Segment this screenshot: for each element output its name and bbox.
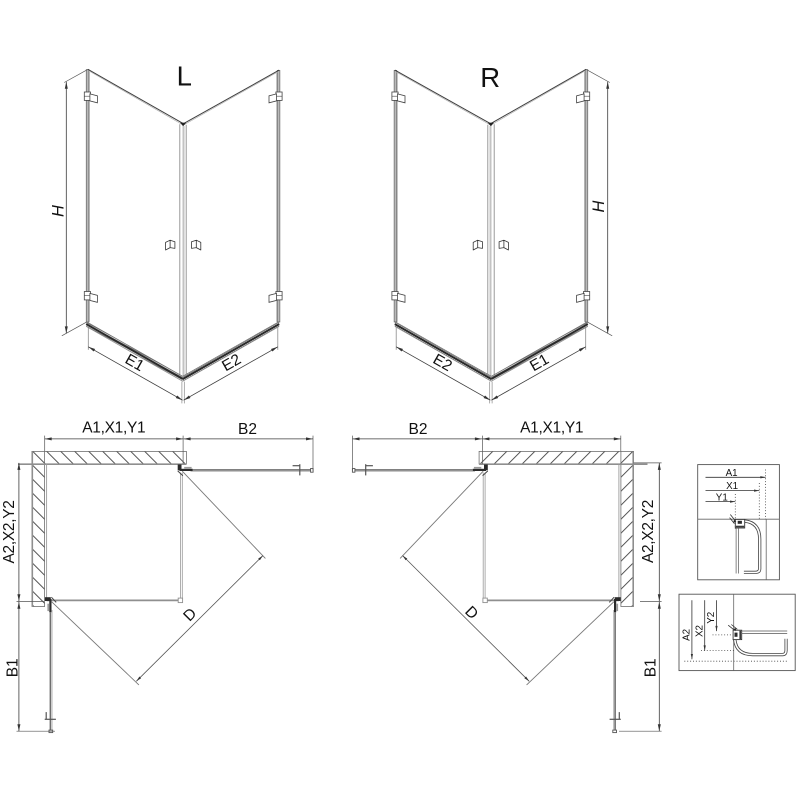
svg-text:X1: X1 [726,481,738,492]
svg-text:D: D [180,605,200,625]
svg-text:B2: B2 [409,421,428,438]
svg-text:A2: A2 [682,629,693,641]
svg-text:Y2: Y2 [706,612,717,624]
svg-text:A2,X2,Y2: A2,X2,Y2 [1,500,18,563]
svg-text:B1: B1 [4,658,21,677]
svg-text:A1,X1,Y1: A1,X1,Y1 [82,420,145,437]
svg-text:A2,X2,Y2: A2,X2,Y2 [640,500,657,563]
svg-text:H: H [590,200,608,212]
svg-text:B2: B2 [238,421,257,438]
svg-text:H: H [49,205,67,217]
svg-text:B1: B1 [642,658,659,677]
svg-text:R: R [480,62,500,93]
svg-text:A1: A1 [726,468,738,479]
svg-text:D: D [461,603,481,623]
svg-text:X2: X2 [694,625,705,637]
svg-text:L: L [177,60,192,91]
svg-text:A1,X1,Y1: A1,X1,Y1 [520,420,583,437]
svg-text:Y1: Y1 [716,492,728,503]
